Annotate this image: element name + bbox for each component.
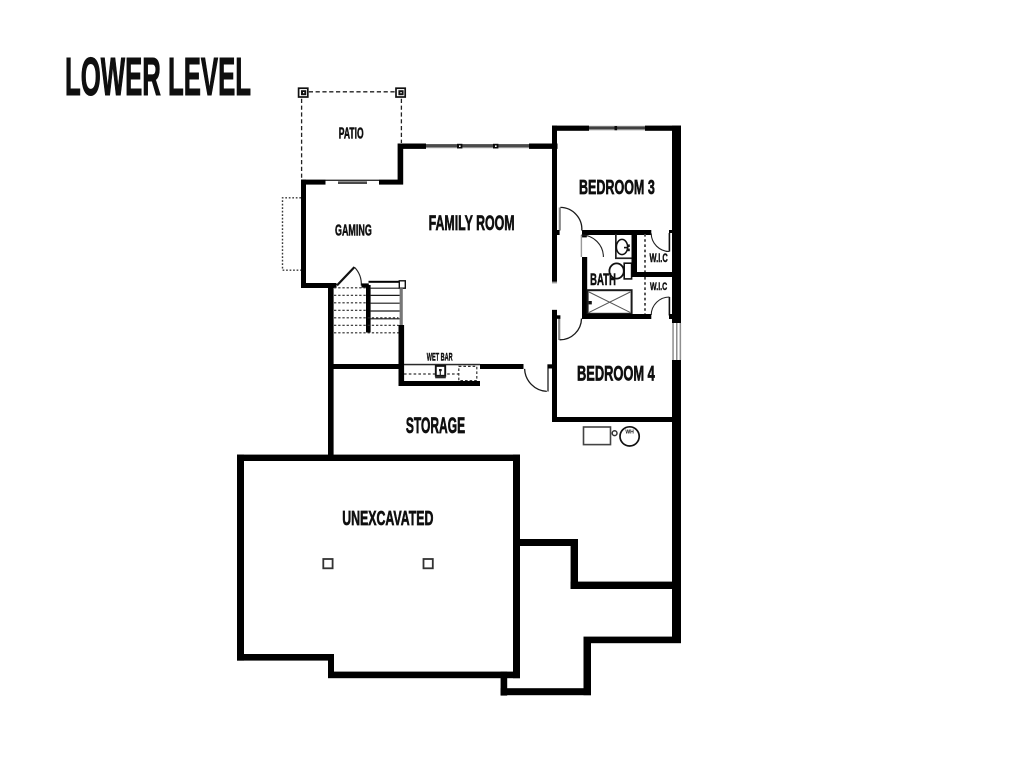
svg-text:BEDROOM 4: BEDROOM 4 xyxy=(577,362,655,385)
svg-text:W.I.C: W.I.C xyxy=(650,281,667,293)
svg-text:FAMILY ROOM: FAMILY ROOM xyxy=(429,211,515,235)
svg-text:BATH: BATH xyxy=(590,270,616,289)
svg-text:BEDROOM 3: BEDROOM 3 xyxy=(579,176,655,199)
svg-text:GAMING: GAMING xyxy=(335,222,372,239)
svg-text:W.I.C: W.I.C xyxy=(650,251,669,265)
svg-text:LOWER LEVEL: LOWER LEVEL xyxy=(65,47,251,107)
svg-text:PATIO: PATIO xyxy=(339,126,364,143)
svg-text:WH: WH xyxy=(625,430,634,436)
svg-text:UNEXCAVATED: UNEXCAVATED xyxy=(342,507,433,530)
svg-text:WET BAR: WET BAR xyxy=(427,352,453,364)
svg-text:STORAGE: STORAGE xyxy=(406,413,465,438)
